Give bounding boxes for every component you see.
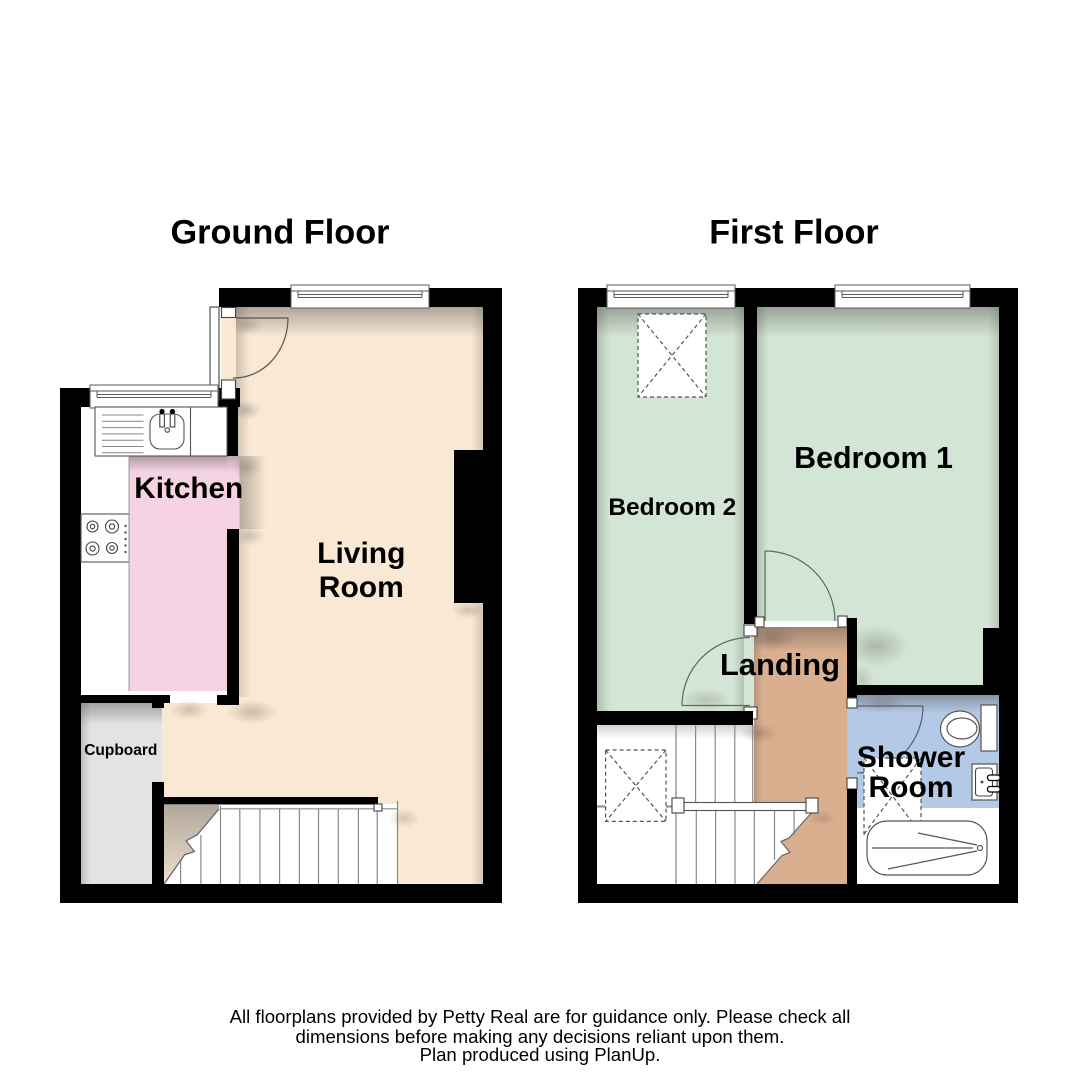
svg-text:Kitchen: Kitchen: [134, 472, 243, 505]
svg-text:Ground Floor: Ground Floor: [170, 214, 389, 252]
svg-text:Cupboard: Cupboard: [84, 742, 157, 759]
svg-text:Landing: Landing: [720, 647, 840, 682]
svg-text:Shower: Shower: [857, 741, 966, 774]
svg-text:Bedroom 2: Bedroom 2: [608, 494, 736, 521]
svg-text:Room: Room: [319, 571, 404, 604]
svg-text:First Floor: First Floor: [709, 214, 879, 252]
svg-text:Plan produced using PlanUp.: Plan produced using PlanUp.: [420, 1044, 661, 1065]
svg-text:Living: Living: [317, 537, 405, 570]
svg-text:Room: Room: [869, 771, 954, 804]
svg-text:Bedroom 1: Bedroom 1: [794, 441, 953, 475]
svg-text:All floorplans provided by Pet: All floorplans provided by Petty Real ar…: [230, 1006, 851, 1027]
